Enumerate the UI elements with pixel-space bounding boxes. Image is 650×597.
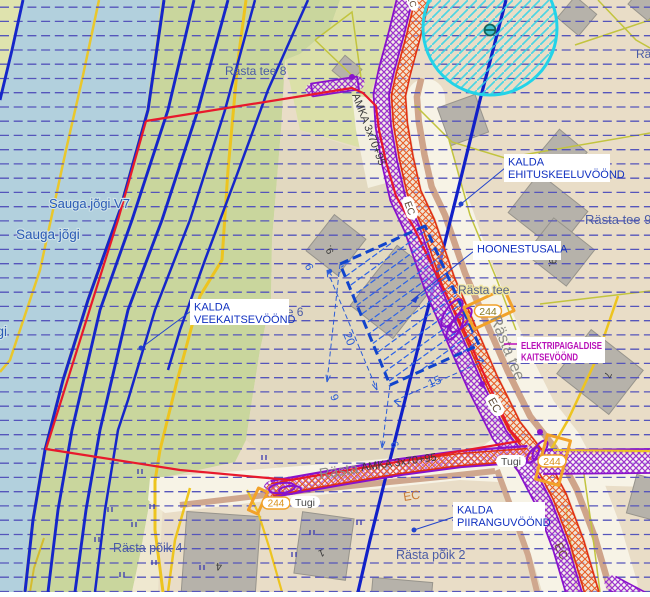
svg-text:KALDA: KALDA: [457, 505, 494, 517]
svg-text:KALDA: KALDA: [508, 157, 545, 169]
svg-text:KAITSEVÖÖND: KAITSEVÖÖND: [521, 351, 578, 364]
svg-text:Sauga jõgi V7: Sauga jõgi V7: [49, 196, 130, 211]
svg-text:KALDA: KALDA: [194, 302, 231, 314]
svg-text:Sauga jõgi: Sauga jõgi: [16, 227, 80, 242]
svg-text:ELEKTRIPAIGALDISE: ELEKTRIPAIGALDISE: [521, 340, 602, 352]
svg-text:PIIRANGUVÖÖND: PIIRANGUVÖÖND: [457, 517, 551, 529]
svg-text:Tugi: Tugi: [501, 456, 521, 468]
svg-text:244: 244: [543, 456, 561, 468]
svg-text:Rästa tee: Rästa tee: [458, 283, 510, 297]
svg-text:EC: EC: [402, 487, 421, 503]
svg-text:Tugi: Tugi: [295, 497, 315, 509]
svg-text:HOONESTUSALA: HOONESTUSALA: [477, 244, 568, 256]
svg-text:jõgi: jõgi: [0, 324, 7, 339]
svg-text:Rästa põik 4: Rästa põik 4: [113, 541, 183, 555]
svg-text:4: 4: [216, 560, 222, 572]
svg-text:Rästa põik 2: Rästa põik 2: [396, 548, 466, 562]
svg-text:VEEKAITSEVÖÖND: VEEKAITSEVÖÖND: [194, 314, 296, 326]
svg-text:Rästa: Rästa: [636, 47, 650, 61]
svg-text:244: 244: [268, 499, 285, 510]
svg-text:Rästa tee 9: Rästa tee 9: [585, 212, 650, 227]
svg-text:Rästa tee 8: Rästa tee 8: [225, 64, 287, 78]
svg-text:EHITUSKEELUVÖÖND: EHITUSKEELUVÖÖND: [508, 169, 625, 181]
